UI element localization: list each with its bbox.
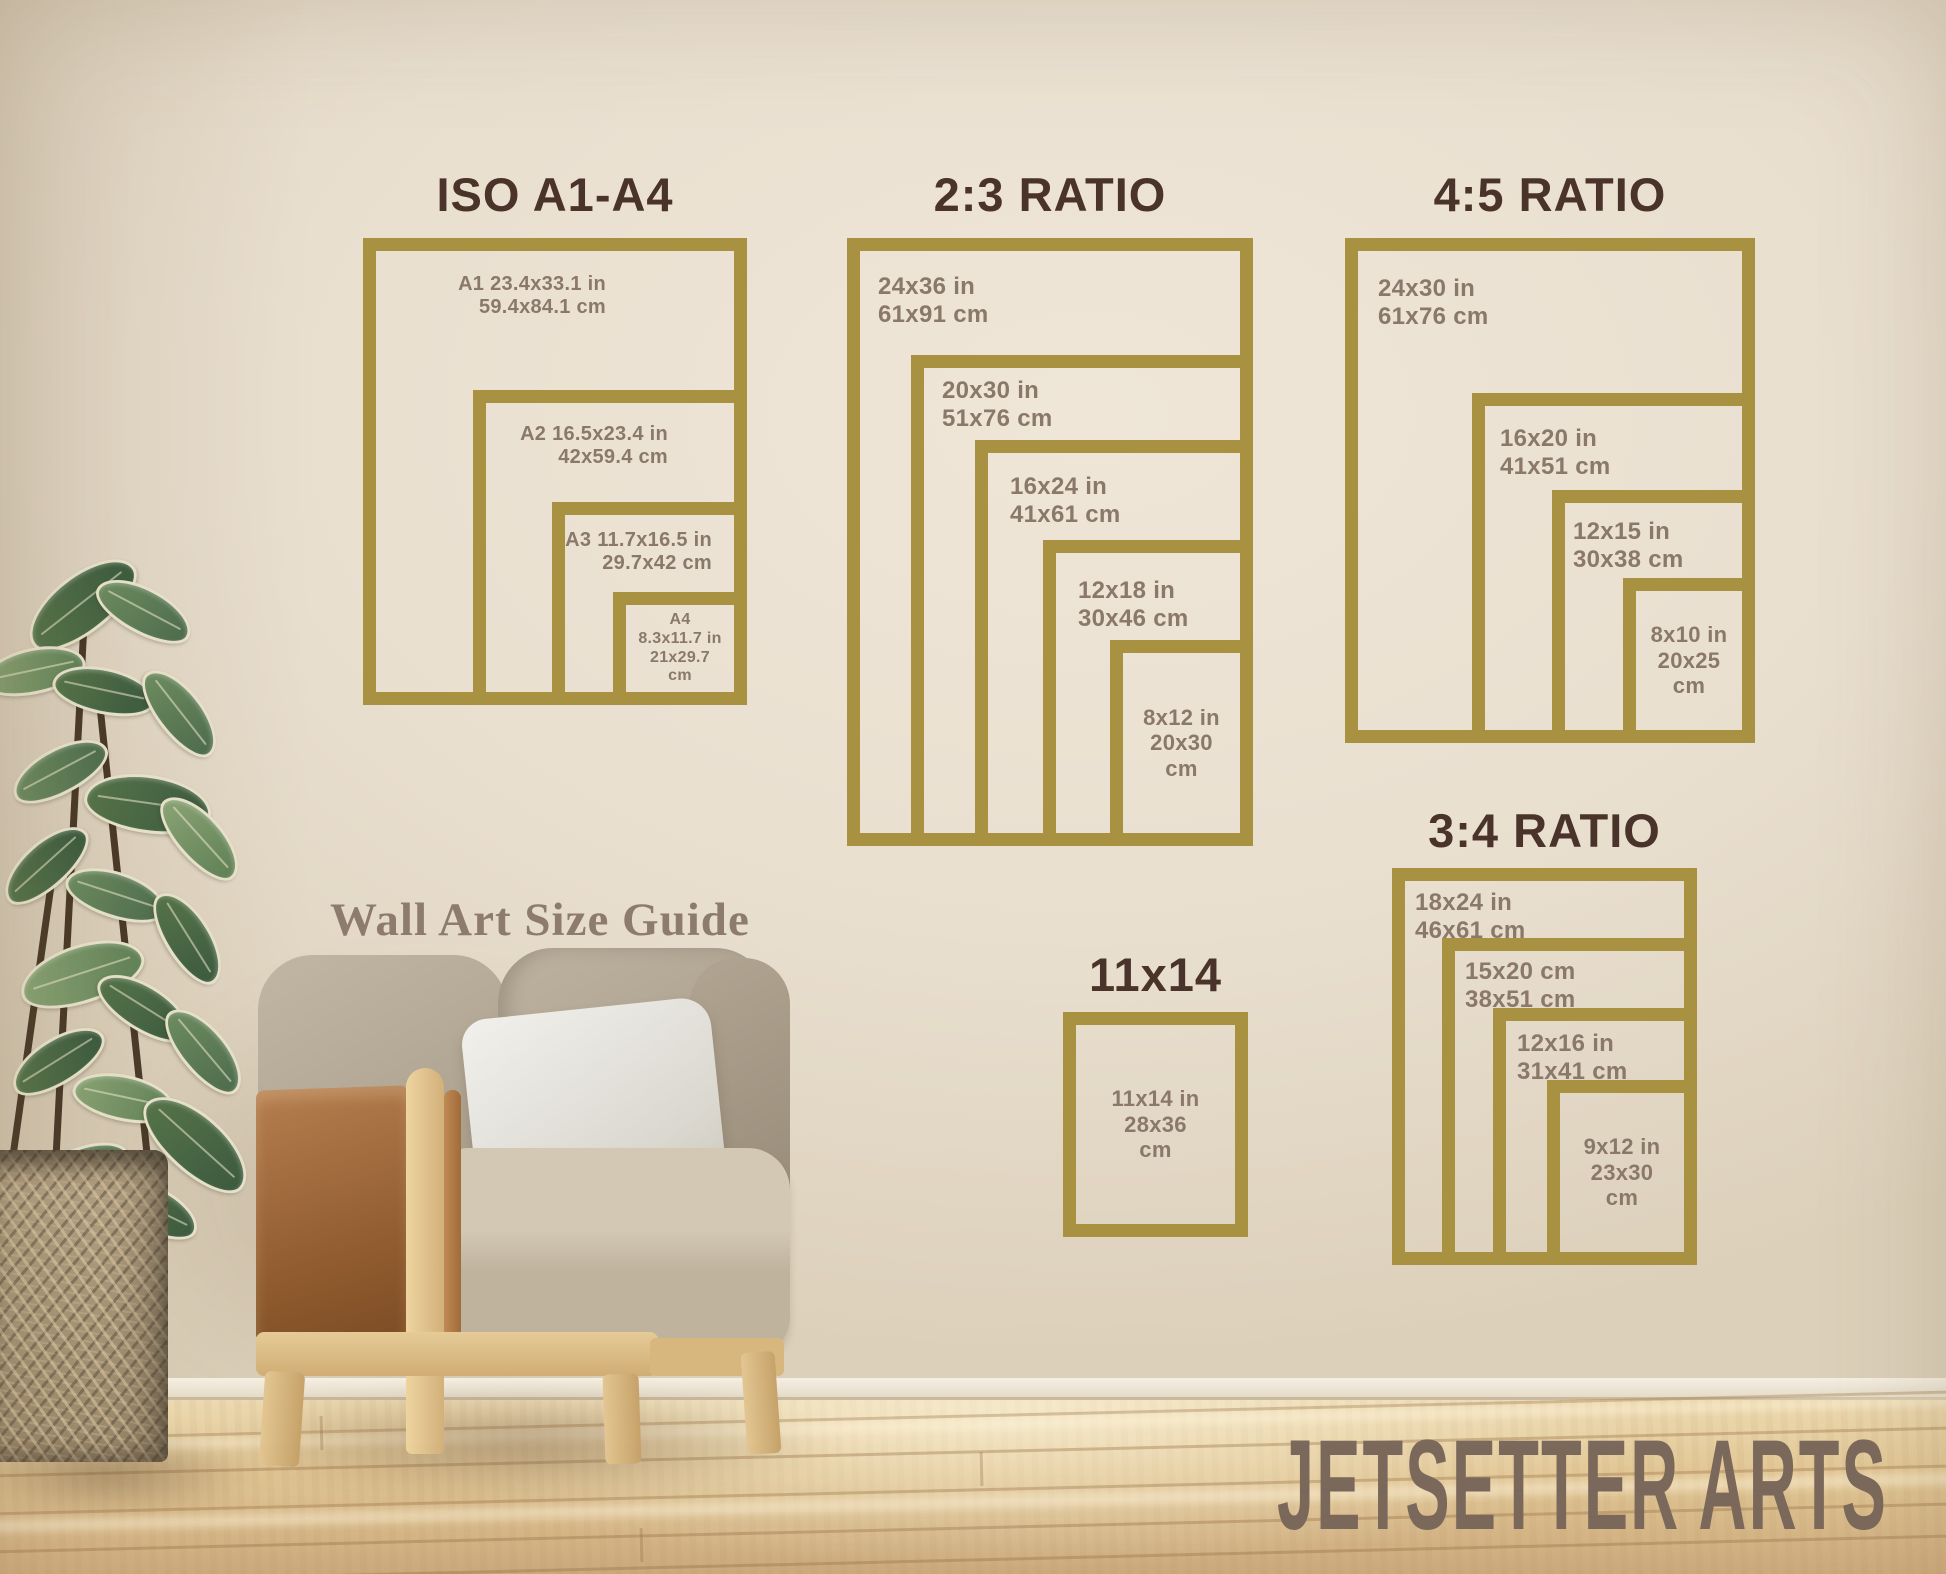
label-line: 12x15 in — [1573, 518, 1684, 546]
wall-art-size-guide-poster: Wall Art Size Guide ISO A1-A4 A1 23.4x33… — [0, 0, 1946, 1574]
label-line: 23x30 — [1591, 1160, 1654, 1186]
frame-24x30: 24x30 in 61x76 cm 16x20 in 41x51 cm 12x1… — [1345, 238, 1755, 743]
label-line: 29.7x42 cm — [562, 552, 712, 575]
label-line: 8x12 in — [1143, 705, 1220, 731]
frame-label-24x30: 24x30 in 61x76 cm — [1378, 275, 1489, 331]
chair-leg — [602, 1373, 641, 1464]
chair-wood-rail — [256, 1332, 658, 1376]
woven-planter-basket — [0, 1150, 168, 1462]
size-group-ratio-3-4: 3:4 RATIO 18x24 in 46x61 cm 15x20 cm 38x… — [1392, 868, 1697, 1265]
label-line: A2 16.5x23.4 in — [488, 423, 668, 446]
frame-label-12x15: 12x15 in 30x38 cm — [1573, 518, 1684, 574]
label-line: 21x29.7 — [650, 649, 710, 668]
label-line: 38x51 cm — [1465, 986, 1576, 1014]
frame-label-24x36: 24x36 in 61x91 cm — [878, 273, 989, 329]
label-line: 12x18 in — [1078, 577, 1189, 605]
label-line: A1 23.4x33.1 in — [396, 273, 606, 296]
frame-label-12x16: 12x16 in 31x41 cm — [1517, 1030, 1628, 1086]
chair-leg — [259, 1371, 305, 1468]
label-line: cm — [668, 667, 692, 686]
frame-label-8x10: 8x10 in 20x25 cm — [1636, 591, 1742, 730]
label-line: 15x20 cm — [1465, 958, 1576, 986]
label-line: 24x36 in — [878, 273, 989, 301]
label-line: 46x61 cm — [1415, 917, 1526, 945]
label-line: 20x30 — [1150, 730, 1213, 756]
label-line: 30x38 cm — [1573, 546, 1684, 574]
label-line: 20x25 — [1658, 648, 1721, 674]
label-line: 41x61 cm — [1010, 501, 1121, 529]
frame-label-15x20: 15x20 cm 38x51 cm — [1465, 958, 1576, 1014]
frame-label-a3: A3 11.7x16.5 in 29.7x42 cm — [562, 529, 712, 575]
brand-watermark: JETSETTER ARTS — [1277, 1422, 1888, 1550]
chair-wood-post — [406, 1068, 444, 1454]
frame-label-16x20: 16x20 in 41x51 cm — [1500, 425, 1611, 481]
label-line: 20x30 in — [942, 377, 1053, 405]
group-title-2-3: 2:3 RATIO — [847, 168, 1253, 222]
label-line: 16x20 in — [1500, 425, 1611, 453]
frame-label-20x30: 20x30 in 51x76 cm — [942, 377, 1053, 433]
frame-label-a2: A2 16.5x23.4 in 42x59.4 cm — [488, 423, 668, 469]
label-line: 24x30 in — [1378, 275, 1489, 303]
label-line: 12x16 in — [1517, 1030, 1628, 1058]
frame-label-16x24: 16x24 in 41x61 cm — [1010, 473, 1121, 529]
label-line: 61x91 cm — [878, 301, 989, 329]
label-line: A4 — [669, 611, 690, 630]
frame-a1: A1 23.4x33.1 in 59.4x84.1 cm A2 16.5x23.… — [363, 238, 747, 705]
label-line: 16x24 in — [1010, 473, 1121, 501]
label-line: cm — [1165, 756, 1197, 782]
label-line: 51x76 cm — [942, 405, 1053, 433]
frame-label-12x18: 12x18 in 30x46 cm — [1078, 577, 1189, 633]
floor-plank-joint — [980, 1452, 984, 1486]
label-line: 59.4x84.1 cm — [396, 296, 606, 319]
frame-label-a4: A4 8.3x11.7 in 21x29.7 cm — [626, 605, 734, 692]
group-title-3-4: 3:4 RATIO — [1392, 804, 1697, 858]
frame-label-9x12: 9x12 in 23x30 cm — [1560, 1093, 1684, 1252]
frame-label-18x24: 18x24 in 46x61 cm — [1415, 889, 1526, 945]
label-line: cm — [1139, 1137, 1171, 1163]
label-line: 8x10 in — [1651, 622, 1728, 648]
label-line: A3 11.7x16.5 in — [562, 529, 712, 552]
size-group-ratio-2-3: 2:3 RATIO 24x36 in 61x91 cm 20x30 in 51x… — [847, 238, 1253, 846]
label-line: 42x59.4 cm — [488, 446, 668, 469]
chair-leather-strap — [444, 1090, 461, 1338]
group-title-4-5: 4:5 RATIO — [1345, 168, 1755, 222]
group-title-11x14: 11x14 — [1063, 948, 1248, 1002]
frame-label-11x14: 11x14 in 28x36 cm — [1076, 1025, 1235, 1224]
label-line: 9x12 in — [1584, 1134, 1661, 1160]
headline: Wall Art Size Guide — [330, 893, 750, 947]
size-group-iso-a1-a4: ISO A1-A4 A1 23.4x33.1 in 59.4x84.1 cm A… — [363, 238, 747, 705]
chair-floor-shadow — [214, 1392, 834, 1496]
chair-leg — [740, 1351, 781, 1455]
frame-18x24: 18x24 in 46x61 cm 15x20 cm 38x51 cm 12x1… — [1392, 868, 1697, 1265]
frame-label-8x12: 8x12 in 20x30 cm — [1123, 653, 1240, 833]
label-line: 8.3x11.7 in — [638, 630, 721, 649]
size-group-11x14: 11x14 11x14 in 28x36 cm — [1063, 1012, 1248, 1237]
frame-24x36: 24x36 in 61x91 cm 20x30 in 51x76 cm 16x2… — [847, 238, 1253, 846]
label-line: cm — [1673, 673, 1705, 699]
label-line: cm — [1606, 1185, 1638, 1211]
frame-label-a1: A1 23.4x33.1 in 59.4x84.1 cm — [396, 273, 606, 319]
chair-seat-cushion — [438, 1148, 790, 1354]
label-line: 28x36 — [1124, 1112, 1187, 1138]
chair-leather-side-panel — [256, 1085, 408, 1342]
label-line: 30x46 cm — [1078, 605, 1189, 633]
label-line: 41x51 cm — [1500, 453, 1611, 481]
floor-plank-joint — [640, 1528, 644, 1562]
label-line: 61x76 cm — [1378, 303, 1489, 331]
label-line: 18x24 in — [1415, 889, 1526, 917]
group-title-iso: ISO A1-A4 — [363, 168, 747, 222]
frame-11x14: 11x14 in 28x36 cm — [1063, 1012, 1248, 1237]
label-line: 11x14 in — [1111, 1086, 1199, 1112]
label-line: 31x41 cm — [1517, 1058, 1628, 1086]
size-group-ratio-4-5: 4:5 RATIO 24x30 in 61x76 cm 16x20 in 41x… — [1345, 238, 1755, 743]
